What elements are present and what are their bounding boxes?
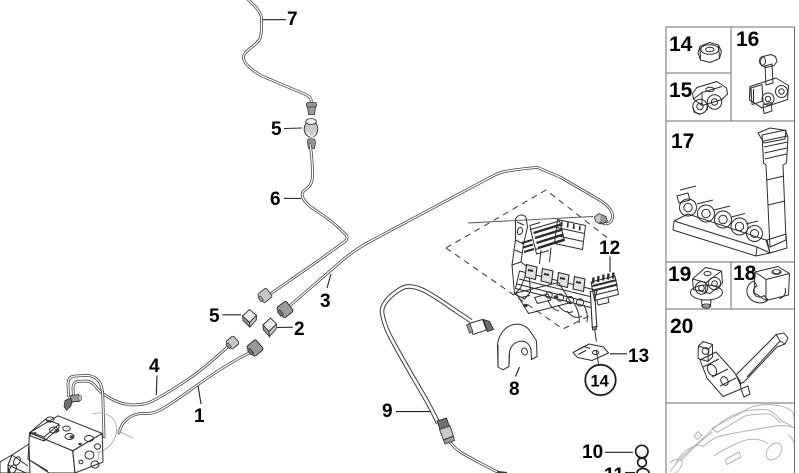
svg-text:5: 5 — [209, 306, 220, 327]
svg-text:6: 6 — [270, 189, 281, 210]
svg-text:5: 5 — [271, 119, 282, 140]
svg-text:16: 16 — [736, 28, 759, 51]
svg-text:17: 17 — [671, 130, 694, 153]
svg-text:2: 2 — [294, 319, 305, 340]
svg-text:14: 14 — [591, 373, 610, 391]
svg-text:8: 8 — [509, 379, 520, 400]
svg-text:20: 20 — [670, 315, 693, 338]
svg-text:15: 15 — [669, 79, 693, 102]
svg-text:13: 13 — [628, 346, 649, 367]
svg-text:4: 4 — [149, 356, 160, 377]
svg-text:9: 9 — [382, 401, 393, 422]
svg-text:19: 19 — [668, 263, 691, 286]
svg-text:10: 10 — [582, 442, 603, 463]
svg-text:3: 3 — [320, 291, 331, 312]
svg-text:11: 11 — [604, 465, 625, 473]
svg-text:7: 7 — [287, 9, 298, 30]
svg-text:12: 12 — [599, 238, 620, 259]
svg-text:14: 14 — [669, 33, 693, 56]
svg-text:1: 1 — [194, 406, 205, 427]
